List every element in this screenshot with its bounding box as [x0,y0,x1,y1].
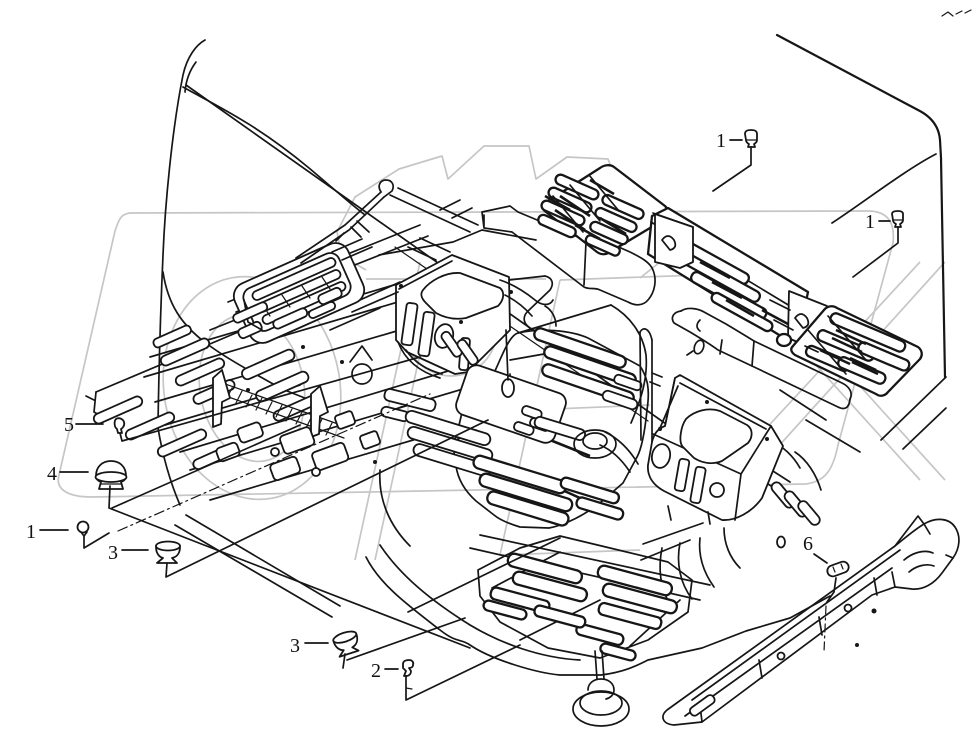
svg-text:4: 4 [47,463,57,485]
svg-text:3: 3 [108,542,118,564]
svg-text:3: 3 [290,635,300,657]
svg-text:1: 1 [26,521,36,543]
svg-text:6: 6 [803,533,813,555]
svg-text:1: 1 [716,130,726,152]
svg-text:5: 5 [64,414,74,436]
svg-text:2: 2 [371,660,381,682]
svg-text:1: 1 [865,211,875,233]
